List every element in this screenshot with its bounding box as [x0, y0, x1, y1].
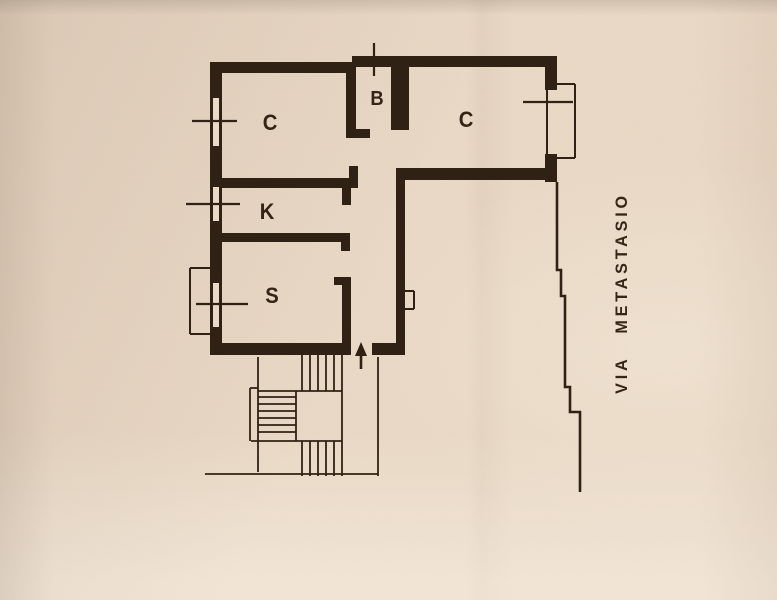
- room-label-s: S: [265, 285, 279, 307]
- street-name-label: VIA METASTASIO: [611, 179, 633, 407]
- room-label-c-right: C: [459, 109, 474, 131]
- paper-texture: [0, 0, 777, 600]
- floor-plan-drawing: [0, 0, 777, 600]
- room-label-c-left: C: [263, 112, 278, 134]
- floor-plan: C B C K S VIA METASTASIO: [0, 0, 777, 600]
- photographed-floor-plan: { "colors": { "paper": "#ead9c6", "ink":…: [0, 0, 777, 600]
- room-label-b: B: [370, 89, 383, 109]
- room-label-k: K: [260, 201, 275, 223]
